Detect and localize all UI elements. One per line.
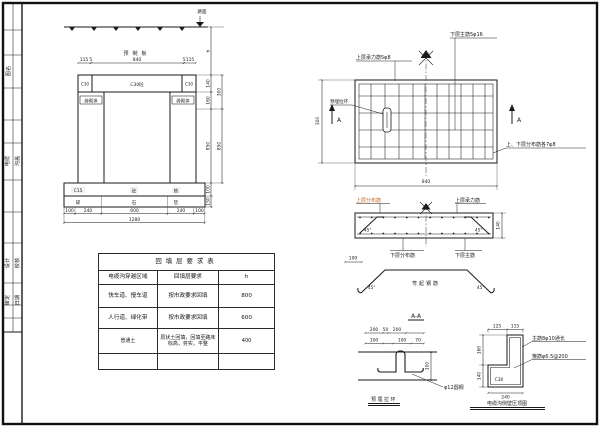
section-marker-a-right: A	[509, 104, 522, 124]
slab-angle-left: 45°	[364, 228, 371, 233]
cap-center-grade: C30砼	[130, 81, 144, 88]
cell-h: 400	[219, 329, 275, 354]
wall-material-left: 砖砌体	[84, 98, 98, 105]
cell-h	[219, 354, 275, 370]
svg-text:70: 70	[415, 338, 421, 344]
ring-detail-caption: 预埋拉环	[371, 396, 397, 403]
titleblock-cell3-right: 校核	[13, 258, 21, 268]
bent-angle-left: 45°	[368, 285, 375, 290]
plan-height-dim: 300	[315, 117, 321, 126]
cap-label: 预制板	[123, 50, 150, 57]
ring-detail-title: A-A	[411, 313, 422, 320]
bed1-labels: C15 砼 垫	[74, 188, 179, 195]
plan-width-dim: 840	[422, 179, 431, 185]
cell-req: 按市政要求回填	[157, 308, 218, 329]
svg-text:垫: 垫	[174, 199, 179, 206]
section-marker-a-left: A	[329, 104, 342, 124]
table-row: 快车道、慢车道 按市政要求回填 800	[99, 285, 275, 308]
right-dims: h 140 160 850 100 150 300 850	[206, 49, 223, 205]
ring-dims-row2: 100 100 70	[370, 338, 421, 344]
titleblock-cell4-left: 审定	[3, 295, 11, 305]
coping-dim-115: 115	[511, 324, 520, 330]
trench-cross-section: 路面 预制板 115 5 840 5 115 C30 C30 C30砼 砖砌体 …	[64, 8, 224, 224]
footing-total-dim: 1280	[129, 217, 141, 223]
table-row: 人行道、绿化带 按市政要求回填 600	[99, 308, 275, 329]
plan-dist-bars-label: 上、下层分布筋各7φ8	[506, 141, 556, 148]
ring-height-dim: 100	[425, 362, 431, 371]
svg-text:砼: 砼	[132, 188, 137, 195]
cell-h: 600	[219, 308, 275, 329]
ring-detail: A-A 200 50 200 100 100 70 100 φ12圆钢 预埋拉环	[358, 313, 464, 406]
coping-caption: 电缆沟侧壁压顶图	[487, 400, 527, 407]
ring-bar-spec: φ12圆钢	[444, 384, 464, 391]
lifting-ring-icon	[378, 351, 424, 372]
drawing-sheet: 图名 电缆 沟盖 设计 校核 审定 日期 路面 预制板 115 5 840 5 …	[0, 0, 600, 427]
svg-text:160: 160	[206, 96, 212, 105]
slab-angle-right: 45°	[475, 228, 482, 233]
svg-text:840: 840	[133, 57, 142, 63]
wall-material-right: 砖砌体	[176, 98, 190, 105]
cad-linework: 图名 电缆 沟盖 设计 校核 审定 日期 路面 预制板 115 5 840 5 …	[0, 0, 600, 427]
svg-text:200: 200	[370, 327, 379, 333]
plan-main-bars-label: 下层主筋5φ16	[450, 31, 483, 38]
bent-angle-right: 45°	[477, 285, 484, 290]
svg-text:150: 150	[206, 197, 212, 206]
cell-req: 原状土回填，回填至路床标高，夯实，平整	[157, 329, 218, 354]
lower-dist-label: 下层分布筋	[390, 252, 415, 259]
backfill-table: 回填层要求表 电缆沟穿越区域 回填层要求 h 快车道、慢车道 按市政要求回填 8…	[98, 253, 275, 370]
svg-text:碎: 碎	[76, 199, 81, 206]
plan-upper-bars-label: 上层承力筋5φ8	[356, 54, 391, 61]
cover-plan-view: 上层承力筋5φ8 下层主筋5φ16 预埋拉环 上、下层分布筋各7φ8 A A 3…	[315, 31, 586, 190]
cell-req: 按市政要求回填	[157, 285, 218, 308]
table-header-req: 回填层要求	[157, 271, 218, 285]
cap-end-grade-right: C30	[185, 82, 193, 87]
svg-text:C15: C15	[74, 188, 83, 194]
svg-text:200: 200	[393, 327, 402, 333]
titleblock-cell4-right: 日期	[14, 295, 21, 305]
svg-text:垫: 垫	[174, 188, 179, 195]
cap-dims: 115 5 840 5 115	[80, 57, 195, 63]
svg-text:300: 300	[217, 88, 223, 97]
bent-bar-label: 弯起钢筋	[412, 280, 440, 287]
slab-section-view: 45° 45° 上层分布筋 上层承力筋 下层分布筋 下层主筋 140 100 4…	[345, 197, 506, 293]
svg-text:100: 100	[195, 208, 204, 214]
plan-ring-label: 预埋拉环	[330, 98, 348, 105]
svg-text:A: A	[517, 117, 522, 124]
svg-text:100: 100	[206, 185, 212, 194]
svg-text:5: 5	[89, 57, 92, 63]
titleblock-cell2-right: 沟盖	[13, 156, 21, 166]
svg-text:140: 140	[206, 79, 212, 88]
svg-text:850: 850	[206, 142, 212, 151]
upper-dist-label: 上层分布筋	[356, 197, 381, 204]
coping-stirrup: 箍筋φ6.5@200	[532, 353, 568, 360]
bed2-labels: 碎 石 垫	[76, 199, 179, 206]
coping-main-bars: 主筋8φ10通长	[532, 335, 565, 342]
svg-text:石: 石	[132, 200, 137, 206]
titleblock-cell1-left: 图名	[4, 66, 12, 76]
slab-thickness-dim: 140	[496, 221, 502, 230]
coping-dim-160: 160	[477, 346, 483, 355]
titleblock-cell3-left: 设计	[3, 258, 11, 268]
upper-main-label: 上层承力筋	[455, 197, 480, 204]
svg-text:240: 240	[177, 208, 186, 214]
svg-text:50: 50	[383, 327, 389, 333]
cell-zone	[99, 354, 158, 370]
cap-end-grade-left: C30	[81, 82, 89, 87]
title-block: 图名 电缆 沟盖 设计 校核 审定 日期	[3, 66, 21, 305]
road-surface-label: 路面	[198, 8, 207, 15]
break-symbol-icon	[419, 50, 433, 65]
svg-text:850: 850	[217, 142, 223, 151]
coping-grade: C30	[495, 377, 504, 383]
cell-req	[157, 354, 218, 370]
cell-zone: 普通土	[99, 329, 158, 354]
coping-dim-240: 240	[501, 395, 510, 401]
footing-dims: 100 240 600 240 100	[65, 208, 204, 214]
ring-dims-row1: 200 50 200	[370, 327, 402, 333]
coping-dim-125: 125	[493, 324, 502, 330]
cell-zone: 人行道、绿化带	[99, 308, 158, 329]
lower-main-label: 下层主筋	[455, 252, 475, 259]
cell-zone: 快车道、慢车道	[99, 285, 158, 308]
table-header-h: h	[219, 271, 275, 285]
svg-text:h: h	[206, 49, 212, 52]
svg-text:115: 115	[186, 57, 195, 63]
table-header-zone: 电缆沟穿越区域	[99, 271, 158, 285]
svg-text:100: 100	[65, 208, 74, 214]
svg-text:100: 100	[370, 338, 379, 344]
bent-hook-dim: 100	[349, 256, 358, 262]
svg-text:240: 240	[84, 208, 93, 214]
svg-text:115: 115	[80, 57, 89, 63]
svg-text:A: A	[337, 117, 342, 124]
svg-text:100: 100	[398, 338, 407, 344]
cell-h: 800	[219, 285, 275, 308]
coping-dim-140: 140	[477, 372, 483, 381]
table-row	[99, 354, 275, 370]
svg-text:600: 600	[130, 208, 139, 214]
table-row: 普通土 原状土回填，回填至路床标高，夯实，平整 400	[99, 329, 275, 354]
titleblock-cell2-left: 电缆	[3, 156, 11, 166]
table-title: 回填层要求表	[99, 254, 275, 271]
coping-detail: C30 125 115 160 140 240 主筋8φ10通长 箍筋φ6.5@…	[470, 324, 586, 410]
